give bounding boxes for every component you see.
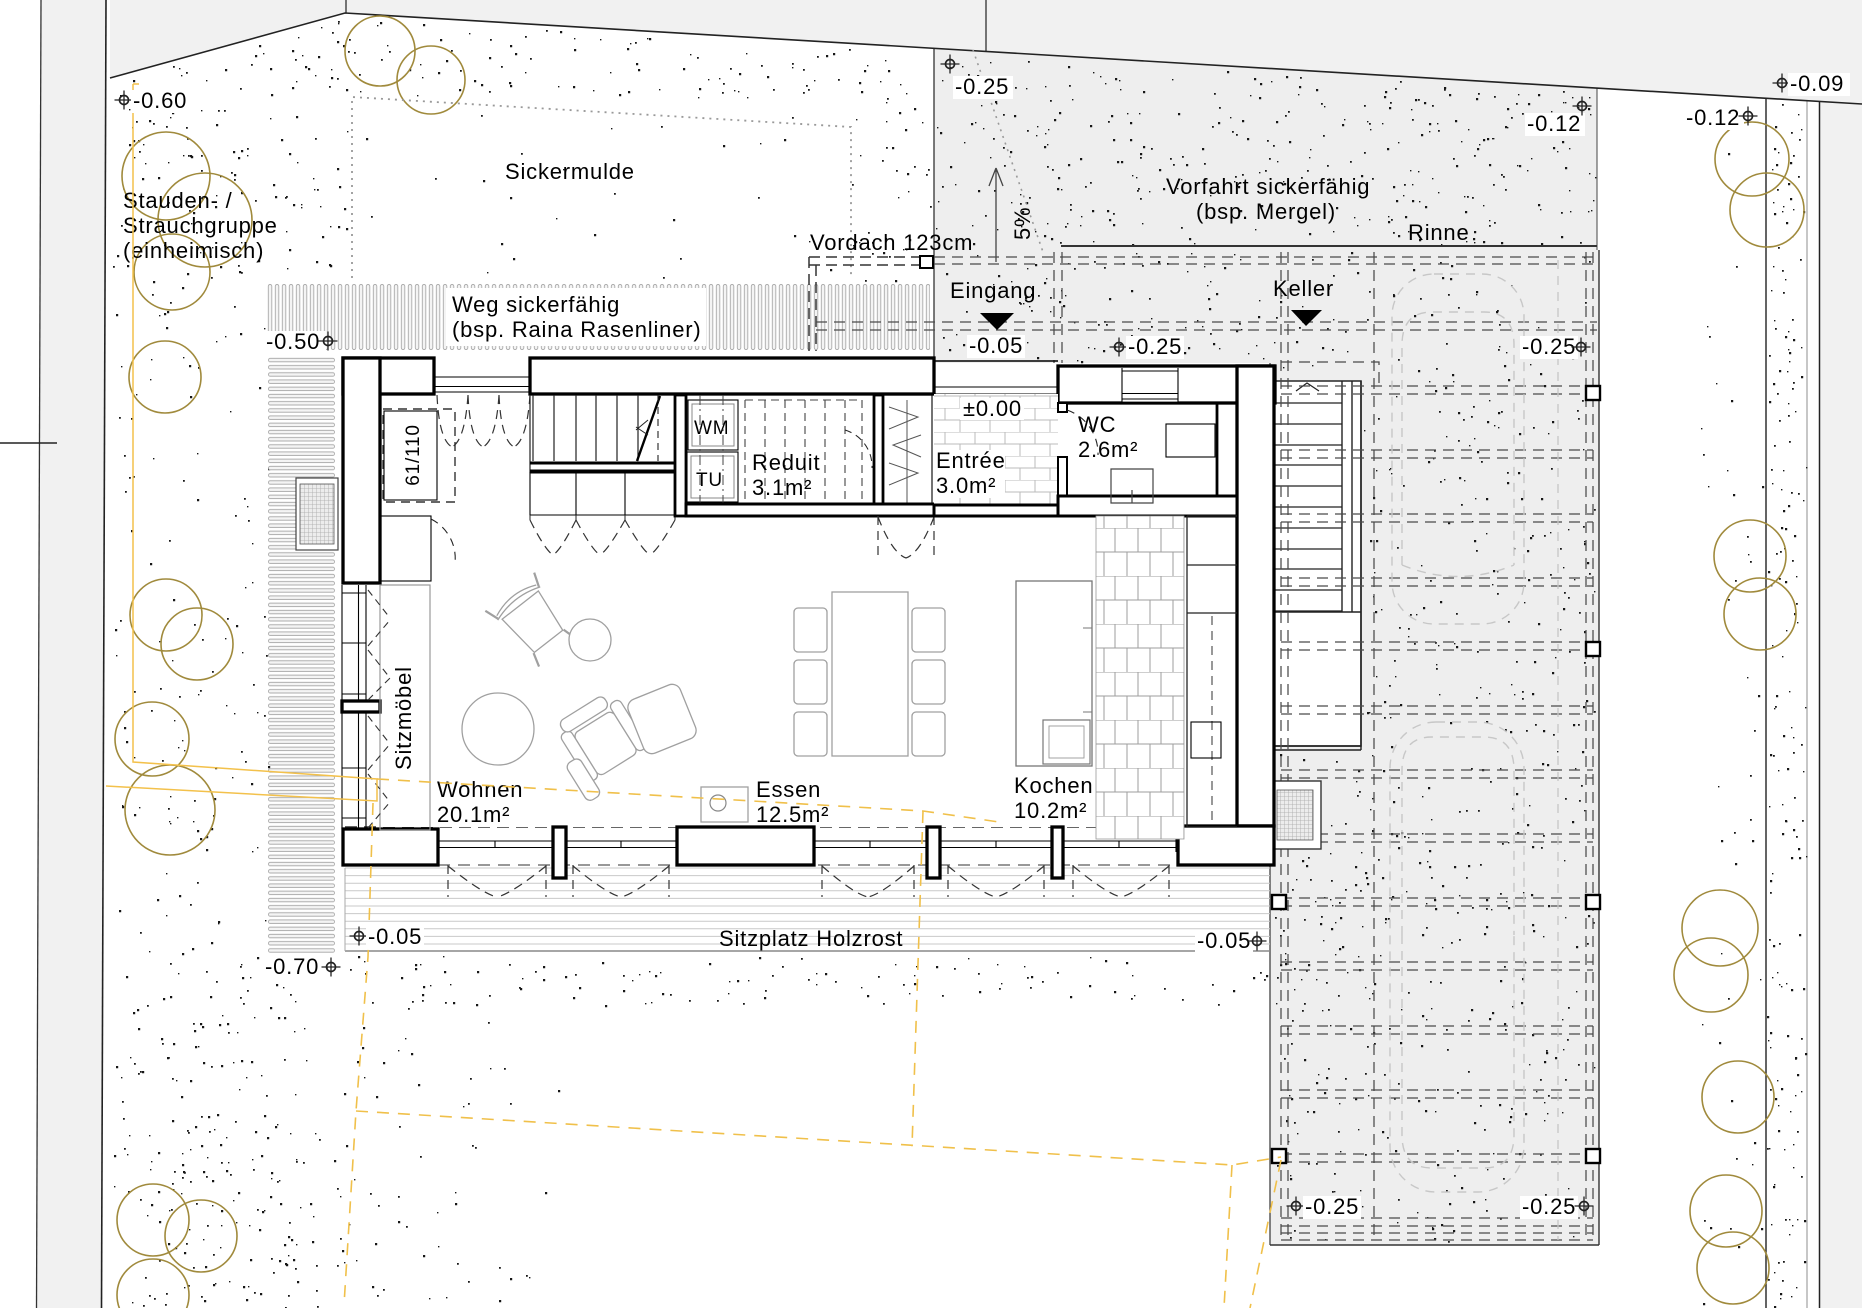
svg-text:Vorfahrt sickerfähig: Vorfahrt sickerfähig: [1166, 174, 1370, 199]
svg-text:20.1m²: 20.1m²: [437, 802, 510, 827]
svg-text:-0.25: -0.25: [1305, 1194, 1359, 1219]
svg-text:WC: WC: [1078, 412, 1116, 437]
svg-text:Wohnen: Wohnen: [437, 777, 523, 802]
svg-text:(bsp. Raina Rasenliner): (bsp. Raina Rasenliner): [452, 317, 702, 342]
svg-text:Reduit: Reduit: [752, 450, 820, 475]
svg-text:-0.25: -0.25: [1522, 1194, 1576, 1219]
svg-text:2.6m²: 2.6m²: [1078, 437, 1138, 462]
svg-text:WM: WM: [694, 418, 729, 439]
svg-text:5%: 5%: [1010, 207, 1035, 240]
svg-text:-0.25: -0.25: [1522, 334, 1576, 359]
svg-text:Strauchgruppe: Strauchgruppe: [123, 213, 278, 238]
svg-text:-0.05: -0.05: [368, 924, 422, 949]
svg-text:Essen: Essen: [756, 777, 821, 802]
svg-text:Stauden- /: Stauden- /: [123, 188, 233, 213]
svg-text:-0.50: -0.50: [266, 329, 320, 354]
svg-text:-0.05: -0.05: [1197, 928, 1251, 953]
svg-text:-0.12: -0.12: [1686, 105, 1740, 130]
svg-text:12.5m²: 12.5m²: [756, 802, 829, 827]
svg-text:3.1m²: 3.1m²: [752, 475, 812, 500]
svg-text:-0.25: -0.25: [955, 74, 1009, 99]
svg-text:Kochen: Kochen: [1014, 773, 1093, 798]
svg-text:Sickermulde: Sickermulde: [505, 159, 635, 184]
svg-text:Weg sickerfähig: Weg sickerfähig: [452, 292, 620, 317]
svg-text:(einheimisch): (einheimisch): [123, 238, 264, 263]
svg-text:Keller: Keller: [1273, 276, 1334, 301]
svg-text:10.2m²: 10.2m²: [1014, 798, 1087, 823]
svg-text:±0.00: ±0.00: [963, 396, 1022, 421]
svg-text:(bsp. Mergel): (bsp. Mergel): [1196, 199, 1336, 224]
svg-text:61/110: 61/110: [403, 424, 424, 486]
svg-text:Eingang: Eingang: [950, 278, 1036, 303]
svg-text:-0.12: -0.12: [1527, 111, 1581, 136]
svg-text:Vordach 123cm: Vordach 123cm: [810, 230, 973, 255]
svg-text:-0.70: -0.70: [265, 954, 319, 979]
svg-text:Entrée: Entrée: [936, 448, 1006, 473]
svg-text:-0.05: -0.05: [969, 333, 1023, 358]
svg-text:Sitzplatz Holzrost: Sitzplatz Holzrost: [719, 926, 903, 951]
svg-text:-0.60: -0.60: [133, 88, 187, 113]
svg-text:-0.25: -0.25: [1128, 334, 1182, 359]
svg-text:Sitzmöbel: Sitzmöbel: [391, 666, 416, 770]
svg-text:Rinne: Rinne: [1408, 220, 1469, 245]
svg-text:-0.09: -0.09: [1790, 71, 1844, 96]
svg-text:3.0m²: 3.0m²: [936, 473, 996, 498]
